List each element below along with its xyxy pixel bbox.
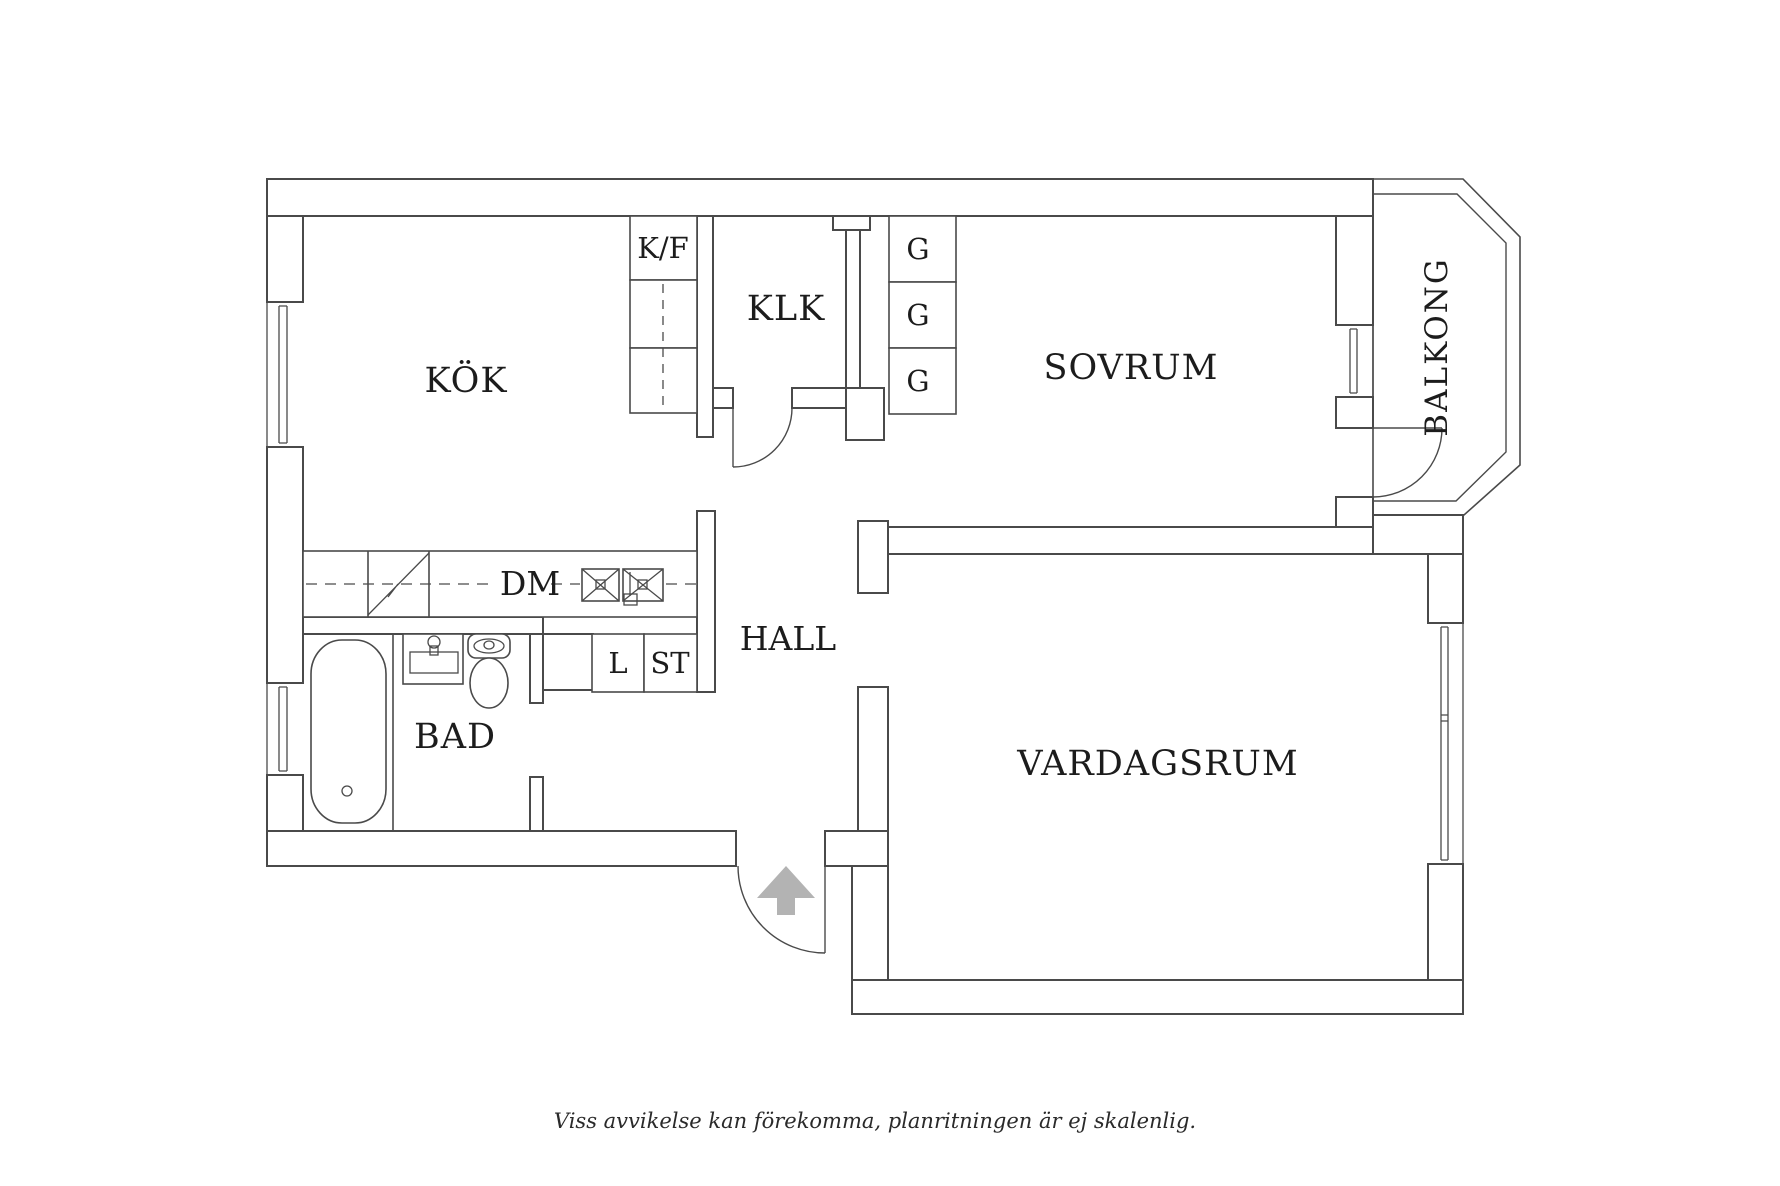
- room-label-balcony: BALKONG: [1419, 257, 1455, 436]
- bathtub: [311, 634, 393, 831]
- room-label-hall: HALL: [740, 619, 837, 658]
- label-storage-cabinet: ST: [650, 646, 690, 680]
- room-label-kitchen: KÖK: [424, 359, 507, 401]
- floorplan-drawing: KÖK KLK SOVRUM BALKONG HALL BAD VARDAGSR…: [0, 0, 1780, 1186]
- floorplan-page: KÖK KLK SOVRUM BALKONG HALL BAD VARDAGSR…: [0, 0, 1780, 1186]
- label-wardrobe-3: G: [906, 364, 929, 398]
- label-linen-cabinet: L: [608, 646, 627, 680]
- room-label-bedroom: SOVRUM: [1043, 348, 1218, 388]
- label-wardrobe-2: G: [906, 298, 929, 332]
- disclaimer-text: Viss avvikelse kan förekomma, planritnin…: [554, 1109, 1196, 1133]
- door-entrance: [738, 866, 825, 953]
- toilet: [468, 634, 510, 708]
- sink-basin-right: [623, 569, 663, 601]
- door-klk: [733, 408, 792, 467]
- sink-basin-left: [582, 569, 619, 601]
- label-wardrobe-1: G: [906, 232, 929, 266]
- label-fridge-freezer: K/F: [637, 231, 689, 265]
- window-living-room: [1428, 623, 1463, 864]
- label-dishwasher: DM: [500, 564, 560, 603]
- room-label-bathroom: BAD: [414, 717, 496, 757]
- window-bathroom: [267, 683, 303, 775]
- window-bedroom-balcony: [1336, 325, 1373, 397]
- toilet-bowl: [470, 658, 508, 708]
- entrance-arrow-icon: [757, 866, 815, 915]
- room-label-closet: KLK: [747, 289, 826, 329]
- bathroom-sink: [403, 634, 463, 684]
- window-kitchen: [267, 302, 303, 447]
- room-label-living-room: VARDAGSRUM: [1016, 744, 1299, 784]
